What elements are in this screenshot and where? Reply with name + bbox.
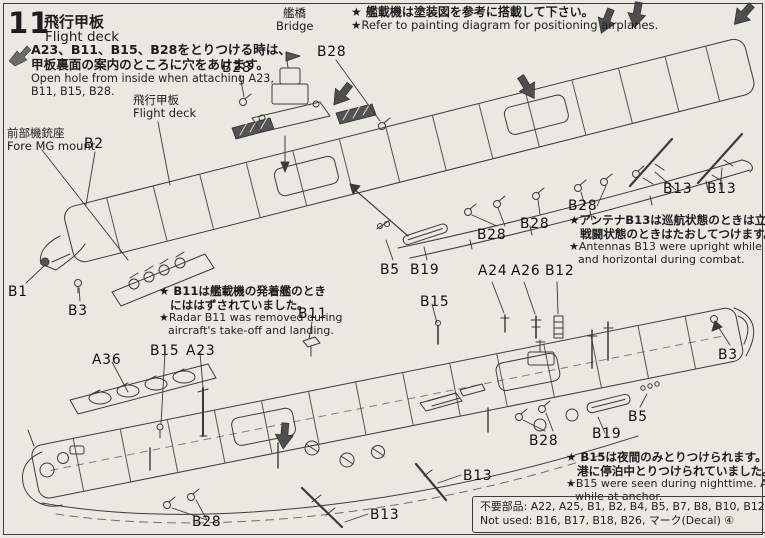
part-label: B11 (298, 306, 327, 322)
airplane-note: ★ 艦載機は塗装図を参考に搭載して下さい。 ★Refer to painting… (351, 5, 658, 32)
part-label: B13 (370, 507, 399, 523)
note-arrow-icon (7, 45, 31, 67)
part-label: B13 (663, 181, 692, 197)
antenna-note-en1: ★Antennas B13 were upright while cruisin… (569, 241, 765, 254)
instruction-sheet-page: 11 飛行甲板 Flight deck A23、B11、B15、B28をとりつけ… (0, 0, 765, 538)
not-used-line2: Not used: B16, B17, B18, B26, マーク(Decal)… (480, 514, 765, 528)
part-label: A36 (92, 352, 121, 368)
part-label: B2 (84, 136, 104, 152)
fore-mg-callout-en: Fore MG mount (7, 140, 95, 153)
header-note-jp-line1: A23、B11、B15、B28をとりつける時は、 (31, 42, 291, 57)
direction-arrow-icon (274, 422, 294, 449)
flight-deck-callout: 飛行甲板 Flight deck (133, 94, 196, 120)
part-label: A24 (478, 263, 507, 279)
part-label: B3 (68, 303, 88, 319)
part-label: B12 (545, 263, 574, 279)
direction-arrow-icon (327, 79, 357, 111)
fore-mg-mount-callout: 前部機銃座 Fore MG mount (7, 127, 95, 153)
part-label: A23 (186, 343, 215, 359)
part-label: B28 (317, 44, 346, 60)
radar-note-jp1: ★ B11は艦載機の発着艦のとき (159, 284, 343, 298)
antenna-note: ★アンテナB13は巡航状態のときは立て、 戦闘状態のときはたおしてつけます。 ★… (569, 213, 765, 266)
part-label: B15 (150, 343, 179, 359)
part-label: B5 (628, 409, 648, 425)
part-label: B28 (477, 227, 506, 243)
part-label: B5 (380, 262, 400, 278)
part-label: B3 (718, 347, 738, 363)
part-label: B28 (222, 60, 251, 76)
radar-note-en2: aircraft's take-off and landing. (159, 325, 343, 338)
part-label: B19 (410, 262, 439, 278)
flight-deck-callout-en: Flight deck (133, 107, 196, 120)
direction-arrow-icon (728, 0, 759, 30)
part-label: B13 (707, 181, 736, 197)
direction-arrow-icon (513, 72, 542, 104)
airplane-note-en: ★Refer to painting diagram for positioni… (351, 19, 658, 32)
antenna-note-jp2: 戦闘状態のときはたおしてつけます。 (569, 227, 765, 241)
part-label: B28 (568, 198, 597, 214)
antenna-note-jp1: ★アンテナB13は巡航状態のときは立て、 (569, 213, 765, 227)
part-label: B19 (592, 426, 621, 442)
bridge-callout-en: Bridge (276, 20, 314, 33)
part-label: B13 (463, 468, 492, 484)
part-label: B28 (520, 216, 549, 232)
not-used-line1: 不要部品: A22, A25, B1, B2, B4, B5, B7, B8, … (480, 500, 765, 514)
night-note-jp1: ★ B15は夜間のみとりつけられます。又 A23は (566, 450, 765, 464)
antenna-note-en2: and horizontal during combat. (569, 254, 765, 267)
part-label: B28 (529, 433, 558, 449)
part-label: B1 (8, 284, 28, 300)
night-note-jp2: 港に停泊中とりつけられていました。 (566, 464, 765, 478)
header-note-jp-line2: 甲板裏面の案内のところに穴をあけます。 (31, 57, 291, 72)
part-label: A26 (511, 263, 540, 279)
header-note-en-line1: Open hole from inside when attaching A23… (31, 72, 291, 85)
header-note: A23、B11、B15、B28をとりつける時は、 甲板裏面の案内のところに穴をあ… (31, 42, 291, 98)
part-label: B28 (192, 514, 221, 530)
night-note-en1: ★B15 were seen during nighttime. A23 was… (566, 478, 765, 491)
airplane-note-jp: ★ 艦載機は塗装図を参考に搭載して下さい。 (351, 5, 658, 19)
part-label: B15 (420, 294, 449, 310)
not-used-parts-box: 不要部品: A22, A25, B1, B2, B4, B5, B7, B8, … (472, 496, 765, 533)
bridge-callout: 艦橋 Bridge (276, 7, 314, 33)
